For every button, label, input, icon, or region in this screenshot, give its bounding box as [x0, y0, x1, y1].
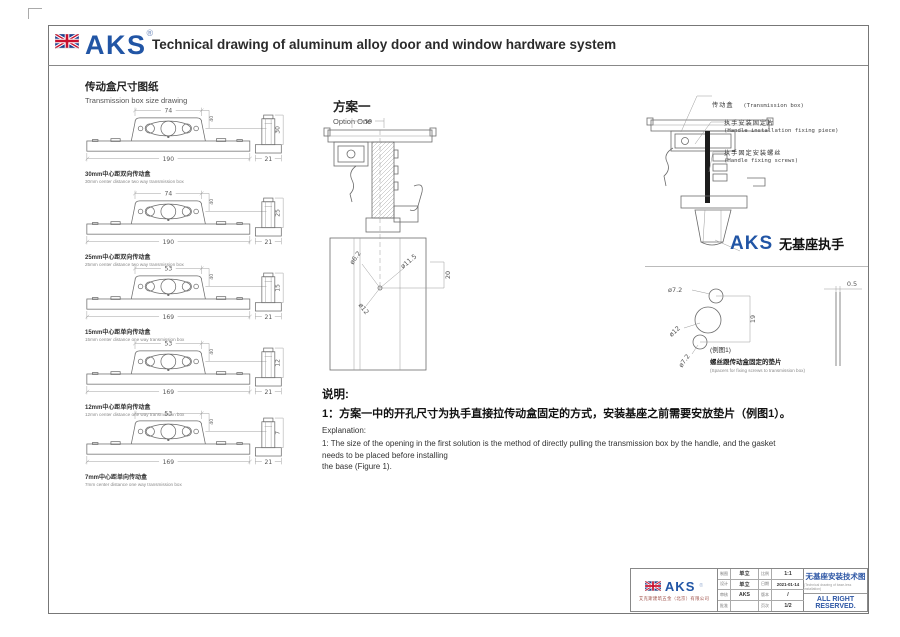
label-fixing-screws: 执手固定安装螺丝 (Handle fixing screws)	[724, 148, 798, 164]
grid-label: 页次	[761, 603, 769, 609]
transmission-box-drawing-3: 53 169 21 15 40	[85, 261, 285, 324]
title-block-doc-cell: 无基座安装技术图 (Technical drawing of base-less…	[804, 569, 867, 611]
product-brand: AKS	[730, 233, 773, 254]
dim-top: 53	[165, 266, 173, 273]
grid-value: AKS	[739, 592, 750, 598]
handle-assembly-drawing	[645, 88, 868, 255]
dim-top: 53	[165, 411, 173, 418]
dim-offset: 20	[444, 271, 452, 279]
dim-bottom: 190	[163, 239, 175, 246]
dim-small: 40	[209, 274, 215, 280]
grid-label: 批准	[720, 603, 728, 609]
grid-value: 单立	[739, 581, 749, 588]
label-fixing-piece-zh: 执手安装固定片	[724, 118, 839, 127]
grid-label: 设计	[720, 581, 728, 587]
grid-value: 1/2	[784, 603, 791, 609]
transmission-box-drawing-2: 74 190 21 25 40	[85, 186, 285, 249]
section-title: 传动盒尺寸图纸 Transmission box size drawing	[85, 79, 187, 105]
transmission-box-figure-3: 53 169 21 15 40 15mm中心距单向传动盒 15mm center…	[85, 261, 290, 342]
grid-value: 单立	[739, 570, 749, 577]
company-name: 艾克斯建筑五金（北京）有限公司	[639, 596, 709, 602]
dim-small: 40	[209, 199, 215, 205]
corner-mark-v	[28, 8, 29, 19]
dim-side: 15	[274, 284, 281, 292]
uk-flag-icon	[55, 34, 79, 49]
dim-small: 40	[209, 116, 215, 122]
dim-side: 7	[274, 431, 281, 435]
dim-profile-width: 30	[364, 118, 372, 126]
title-block-brand-row: AKS ®	[645, 579, 703, 594]
doc-title: 无基座安装技术图	[806, 571, 866, 582]
notes-block: 说明: 1：方案一中的开孔尺寸为执手直接拉传动盒固定的方式，安装基座之前需要安放…	[322, 386, 797, 473]
gasket-caption: (例图1) 螺丝跟传动盒固定的垫片 (Spacers for fixing sc…	[710, 344, 805, 373]
label-transmission-box-en: (Transmission box)	[743, 103, 804, 109]
transmission-box-figure-2: 74 190 21 25 40 25mm中心距双向传动盒 25mm center…	[85, 186, 290, 267]
cross-section-drawing: 30 ø6.2 ø11.5 ø12 20	[322, 110, 457, 382]
title-block-brand-cell: AKS ® 艾克斯建筑五金（北京）有限公司	[631, 569, 718, 611]
figure-caption: 30mm中心距双向传动盒 30mm center distance two wa…	[85, 169, 290, 184]
transmission-box-figure-4: 53 169 21 12 40 12mm中心距单向传动盒 12mm center…	[85, 336, 290, 417]
dim-top: 74	[165, 108, 173, 115]
gasket-caption-fig: (例图1)	[710, 344, 805, 354]
product-name-zh: 无基座执手	[779, 237, 844, 252]
grid-label: 制图	[720, 571, 728, 577]
title-block: AKS ® 艾克斯建筑五金（北京）有限公司 制图 单立 比例 1:1 设计 单立…	[630, 568, 868, 612]
figure-caption-zh: 25mm中心距双向传动盒	[85, 252, 290, 261]
dim-end: 21	[265, 156, 273, 163]
dim-top: 53	[165, 341, 173, 348]
dim-gasket-hole-top: ø7.2	[668, 286, 682, 294]
dim-small: 40	[209, 419, 215, 425]
label-fixing-screws-en: (Handle fixing screws)	[724, 158, 798, 164]
notes-line2-en: the base (Figure 1).	[322, 461, 797, 473]
transmission-box-drawing-1: 74 190 21 30 40	[85, 103, 285, 166]
dim-side: 25	[274, 209, 281, 217]
dim-gasket-hole-bottom: ø7.2	[677, 353, 692, 369]
dim-side: 30	[274, 126, 281, 134]
grid-label: 版本	[761, 592, 769, 598]
grid-label: 日期	[761, 581, 769, 587]
label-transmission-box-zh: 传动盒	[712, 102, 734, 109]
dim-hole3: ø12	[357, 301, 371, 316]
figure-caption-zh: 30mm中心距双向传动盒	[85, 169, 290, 178]
figure-caption-en: 7mm center distance one way transmission…	[85, 482, 290, 487]
brand-logo: AKS®	[85, 28, 153, 61]
grid-value: /	[787, 592, 788, 598]
figure-caption-zh: 7mm中心距单向传动盒	[85, 472, 290, 481]
title-block-grid: 制图 单立 比例 1:1 设计 单立 日期 2021-01-14 审核 AKS …	[718, 569, 804, 611]
page-title: Technical drawing of aluminum alloy door…	[152, 37, 616, 52]
dim-side: 12	[274, 359, 281, 367]
dim-gasket-height: 19	[749, 315, 757, 323]
right-column-divider	[645, 266, 868, 267]
dim-hole2: ø11.5	[399, 252, 418, 270]
header-divider	[48, 65, 868, 66]
dim-bottom: 169	[163, 459, 175, 466]
uk-flag-icon-small	[645, 581, 661, 591]
dim-gasket-hole-mid: ø12	[667, 324, 681, 338]
transmission-box-figure-5: 53 169 21 7 40 7mm中心距单向传动盒 7mm center di…	[85, 406, 290, 487]
doc-subtitle: (Technical drawing of base-less installa…	[804, 583, 867, 591]
dim-top: 74	[165, 191, 173, 198]
dim-end: 21	[265, 239, 273, 246]
dim-end: 21	[265, 389, 273, 396]
gasket-caption-en: (Spacers for fixing screws to transmissi…	[710, 368, 805, 373]
dim-gasket-thickness: 0.5	[847, 280, 857, 288]
notes-line-zh: 1：方案一中的开孔尺寸为执手直接拉传动盒固定的方式，安装基座之前需要安放垫片（例…	[322, 405, 797, 421]
dim-bottom: 169	[163, 314, 175, 321]
gasket-caption-zh: 螺丝跟传动盒固定的垫片	[710, 356, 805, 366]
dim-bottom: 169	[163, 389, 175, 396]
label-transmission-box: 传动盒 (Transmission box)	[712, 92, 804, 111]
figure-caption: 7mm中心距单向传动盒 7mm center distance one way …	[85, 472, 290, 487]
grid-label: 比例	[761, 571, 769, 577]
dim-hole1: ø6.2	[348, 250, 363, 266]
transmission-box-drawing-5: 53 169 21 7 40	[85, 406, 285, 469]
figure-caption-zh: 15mm中心距单向传动盒	[85, 327, 290, 336]
dim-end: 21	[265, 314, 273, 321]
product-name: AKS无基座执手	[730, 233, 844, 255]
label-fixing-screws-zh: 执手固定安装螺丝	[724, 148, 798, 157]
rights-notice: ALL RIGHT RESERVED.	[804, 593, 867, 610]
section-title-zh: 传动盒尺寸图纸	[85, 79, 187, 94]
corner-mark-h	[28, 8, 42, 9]
dim-end: 21	[265, 459, 273, 466]
dim-small: 40	[209, 349, 215, 355]
dim-bottom: 190	[163, 156, 175, 163]
title-block-brand: AKS	[665, 579, 695, 594]
label-fixing-piece: 执手安装固定片 (Handle installation fixing piec…	[724, 118, 839, 134]
transmission-box-figure-1: 74 190 21 30 40 30mm中心距双向传动盒 30mm center…	[85, 103, 290, 184]
title-block-reg: ®	[699, 583, 703, 589]
brand-text: AKS	[85, 30, 147, 60]
grid-label: 审核	[720, 592, 728, 598]
label-fixing-piece-en: (Handle installation fixing piece)	[724, 128, 839, 134]
notes-line1-en: 1: The size of the opening in the first …	[322, 438, 797, 461]
grid-value: 2021-01-14	[777, 582, 799, 587]
grid-value: 1:1	[784, 571, 792, 577]
notes-heading-en: Explanation:	[322, 426, 797, 435]
transmission-box-drawing-4: 53 169 21 12 40	[85, 336, 285, 399]
figure-caption-en: 30mm center distance two way transmissio…	[85, 179, 290, 184]
notes-heading-zh: 说明:	[322, 386, 797, 402]
